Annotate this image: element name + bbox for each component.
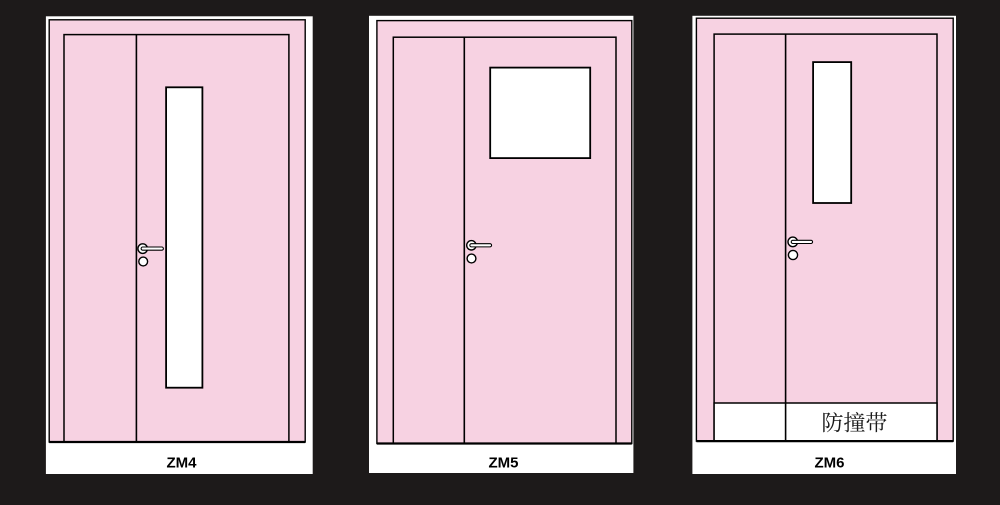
- svg-text:ZM4: ZM4: [167, 455, 198, 472]
- svg-text:ZM6: ZM6: [815, 455, 845, 472]
- svg-text:ZM5: ZM5: [489, 455, 519, 472]
